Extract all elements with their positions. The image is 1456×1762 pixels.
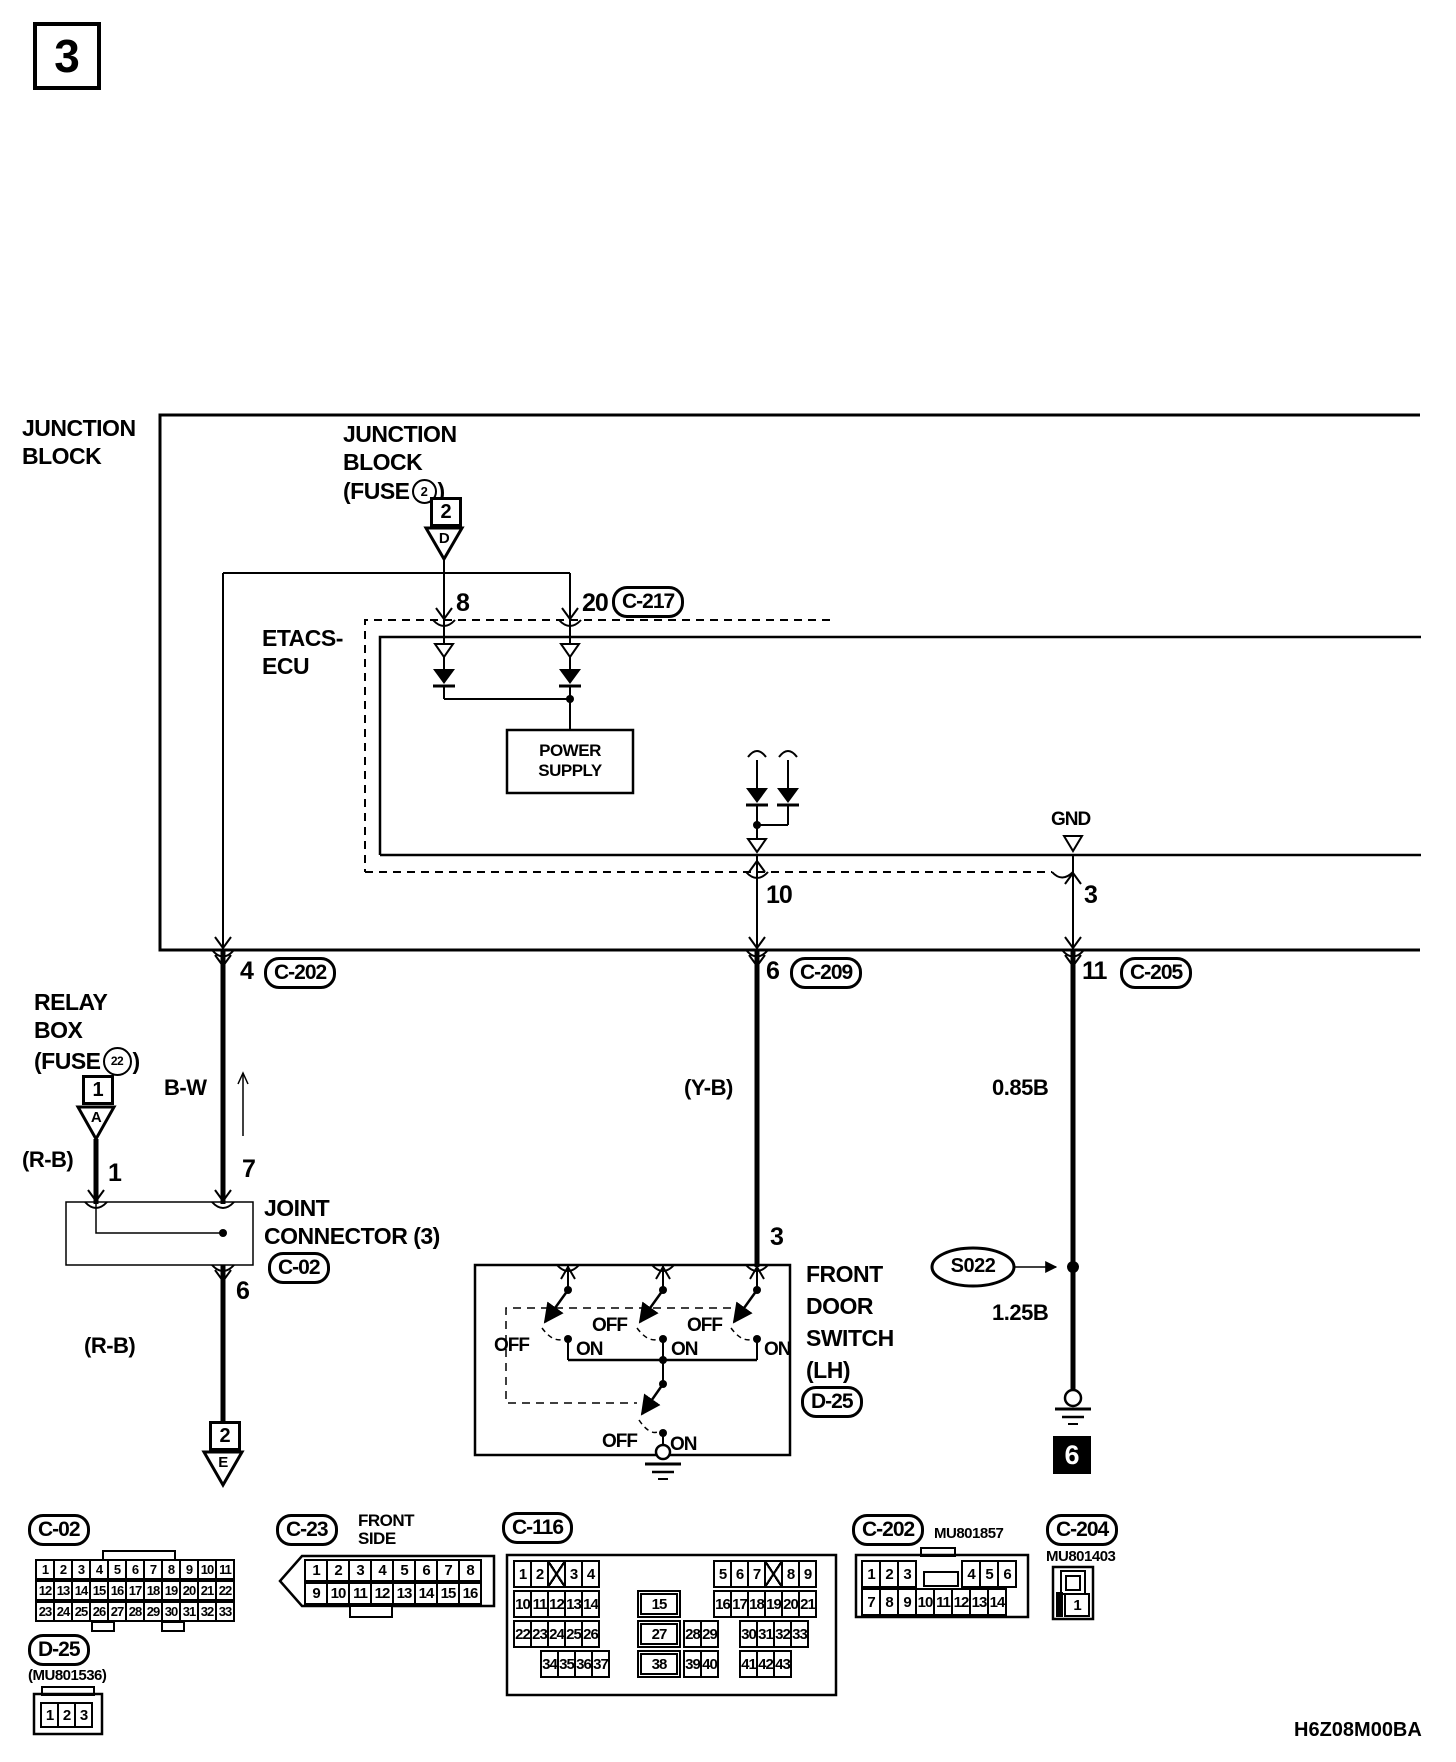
- pinout-badge-c02: C-02: [28, 1514, 90, 1546]
- c23-side-label-2: SIDE: [358, 1530, 396, 1548]
- triangle-letter-e: E: [208, 1455, 238, 1471]
- pin-cell: 9: [897, 1588, 917, 1616]
- pin-cell: 24: [53, 1601, 73, 1622]
- pin-cell: 19: [161, 1580, 181, 1601]
- pin-cell: 3: [74, 1702, 93, 1728]
- pin-cell: 3: [348, 1559, 372, 1582]
- switch1-on-label: ON: [576, 1340, 603, 1360]
- door-switch-label-3: SWITCH: [806, 1326, 894, 1350]
- relay-pin-1: 1: [108, 1160, 121, 1186]
- pin-cell: 12: [370, 1582, 394, 1605]
- triangle-letter-a: A: [81, 1110, 111, 1126]
- pin-cell: 10: [326, 1582, 350, 1605]
- c202-group-r1r: 456: [961, 1560, 1017, 1588]
- c116-group-r3r: 30313233: [739, 1620, 809, 1648]
- connector-badge-c205: C-205: [1120, 957, 1192, 989]
- pin-cell: 31: [179, 1601, 199, 1622]
- pin-cell: 12: [951, 1588, 971, 1616]
- c02-pin-row-2: 1213141516171819202122: [35, 1580, 235, 1601]
- fuse-open: (FUSE: [343, 479, 410, 503]
- relay-box-label-2: BOX: [34, 1018, 82, 1042]
- c02-pin-row-1: 1234567891011: [35, 1559, 235, 1580]
- wire-bw-pin-4: 4: [240, 958, 253, 984]
- pin-cell: 6: [997, 1560, 1017, 1588]
- wiring-diagram-page: 3 JUNCTION BLOCK JUNCTION BLOCK (FUSE 2 …: [0, 0, 1456, 1762]
- pin-cell: 2: [326, 1559, 350, 1582]
- ground-symbol-icon: [1055, 1390, 1091, 1424]
- terminal-slot-2: 2: [209, 1421, 241, 1451]
- switch2-on-label: ON: [671, 1340, 698, 1360]
- schematic-linework: [0, 0, 1456, 1762]
- wire-color-rb-upper: (R-B): [22, 1148, 73, 1171]
- gnd-pin-triangle-icon: [1064, 836, 1082, 851]
- connector-badge-c202: C-202: [264, 957, 336, 989]
- triangle-letter-d: D: [429, 531, 459, 547]
- pin-cell: 3: [71, 1559, 91, 1580]
- pinout-badge-c204: C-204: [1046, 1514, 1118, 1546]
- d25-pin-row: 123: [40, 1702, 93, 1728]
- pin-cell: 8: [161, 1559, 181, 1580]
- pin-cell: 4: [581, 1560, 600, 1588]
- connector-badge-c217: C-217: [612, 586, 684, 618]
- wire-color-rb-lower: (R-B): [84, 1334, 135, 1357]
- pin-cell: 1: [35, 1559, 55, 1580]
- switch3-on-label: ON: [764, 1340, 791, 1360]
- relay-fuse-open: (FUSE: [34, 1049, 101, 1073]
- pin-cell: 14: [71, 1580, 91, 1601]
- pinout-badge-c202: C-202: [852, 1514, 924, 1546]
- c02-pin-row-3: 2324252627282930313233: [35, 1601, 235, 1622]
- power-supply-label-1: POWER: [507, 742, 633, 760]
- c116-group-r2c: 15: [637, 1590, 681, 1618]
- wire-gnd-pin-11: 11: [1082, 958, 1106, 984]
- c116-group-r4l: 34353637: [540, 1650, 610, 1678]
- switch2-off-label: OFF: [592, 1316, 627, 1336]
- pin-cell: 1: [861, 1560, 881, 1588]
- pin-cell: 4: [961, 1560, 981, 1588]
- pin-cell: 16: [458, 1582, 482, 1605]
- pin-cell: 17: [125, 1580, 145, 1601]
- pin-cell: 7: [436, 1559, 460, 1582]
- pin-cell: 7: [861, 1588, 881, 1616]
- pin-cell: 15: [436, 1582, 460, 1605]
- door-switch-label-4: (LH): [806, 1358, 850, 1382]
- pin-cell: 30: [161, 1601, 181, 1622]
- pin-cell: 6: [125, 1559, 145, 1580]
- page-number-box: 3: [33, 22, 101, 90]
- pin-cell: 5: [107, 1559, 127, 1580]
- wire-color-yb: (Y-B): [684, 1076, 733, 1099]
- c202-group-r1l: 123: [861, 1560, 917, 1588]
- pin-cell: 27: [640, 1623, 678, 1645]
- relay-fuse-close: ): [133, 1049, 140, 1073]
- pin-cell: 11: [215, 1559, 235, 1580]
- pin-cell: 2: [879, 1560, 899, 1588]
- door-switch-label-2: DOOR: [806, 1294, 873, 1318]
- switch4-on-label: ON: [670, 1435, 697, 1455]
- junction-block-label-1: JUNCTION: [22, 416, 136, 440]
- switch4-off-label: OFF: [602, 1432, 637, 1452]
- c116-group-r1l: 1234: [513, 1560, 600, 1588]
- pin-cell: 14: [581, 1590, 600, 1618]
- pin-cell: 22: [215, 1580, 235, 1601]
- pin-cell: 14: [987, 1588, 1007, 1616]
- etacs-name-1: ETACS-: [262, 626, 343, 650]
- pin-cell: 28: [125, 1601, 145, 1622]
- switch-pin-3: 3: [770, 1224, 783, 1250]
- etacs-input-diodes: [433, 619, 581, 730]
- c116-group-r3c2: 2829: [683, 1620, 719, 1648]
- wire-color-bw: B-W: [164, 1076, 206, 1099]
- connector-badge-d25: D-25: [801, 1386, 863, 1418]
- pin-cell: 3: [897, 1560, 917, 1588]
- switch3-off-label: OFF: [687, 1316, 722, 1336]
- c23-side-label-1: FRONT: [358, 1512, 414, 1530]
- pinout-badge-d25: D-25: [28, 1634, 90, 1666]
- pin-cell: 4: [89, 1559, 109, 1580]
- etacs-pin-8: 8: [456, 590, 469, 616]
- pin-cell: 26: [89, 1601, 109, 1622]
- pinout-badge-c23: C-23: [276, 1514, 338, 1546]
- pin-cell: 9: [179, 1559, 199, 1580]
- pin-cell: 20: [179, 1580, 199, 1601]
- pin-cell: 15: [89, 1580, 109, 1601]
- pin-cell: 23: [35, 1601, 55, 1622]
- pin-cell: 18: [143, 1580, 163, 1601]
- c116-group-r1r: 56789: [713, 1560, 817, 1588]
- pin-cell: 9: [304, 1582, 328, 1605]
- pin-cell: 13: [969, 1588, 989, 1616]
- pin-cell: 10: [915, 1588, 935, 1616]
- c204-pin-cell: 1: [1064, 1593, 1090, 1617]
- junction-block-label-2: BLOCK: [22, 444, 101, 468]
- pin-cell: 8: [879, 1588, 899, 1616]
- pin-cell: 29: [143, 1601, 163, 1622]
- pin-cell: 38: [640, 1653, 678, 1675]
- pin-cell: 33: [215, 1601, 235, 1622]
- pin-cell: 21: [197, 1580, 217, 1601]
- pinout-badge-c116: C-116: [502, 1512, 573, 1544]
- power-supply-label-2: SUPPLY: [507, 762, 633, 780]
- jb-fuse-label-1: JUNCTION: [343, 422, 457, 446]
- joint-pin-7: 7: [242, 1156, 255, 1182]
- c204-part-number: MU801403: [1046, 1549, 1115, 1565]
- c202-group-r2: 7891011121314: [861, 1588, 1007, 1616]
- c23-pin-row-1: 12345678: [304, 1559, 482, 1582]
- pin-cell: 5: [979, 1560, 999, 1588]
- door-switch-label-1: FRONT: [806, 1262, 883, 1286]
- pin-cell: 9: [798, 1560, 817, 1588]
- c23-pin-row-2: 910111213141516: [304, 1582, 482, 1605]
- c116-group-r2l: 1011121314: [513, 1590, 600, 1618]
- pin-cell: 8: [458, 1559, 482, 1582]
- pin-cell: 1: [1064, 1593, 1090, 1617]
- d25-part-number: (MU801536): [28, 1668, 106, 1684]
- pin-cell: 25: [71, 1601, 91, 1622]
- joint-connector-label-1: JOINT: [264, 1196, 329, 1220]
- pin-cell: 33: [790, 1620, 809, 1648]
- pin-cell: 11: [348, 1582, 372, 1605]
- relay-box-label-1: RELAY: [34, 990, 107, 1014]
- switch1-off-label: OFF: [494, 1336, 529, 1356]
- pin-cell: 40: [700, 1650, 719, 1678]
- gnd-label: GND: [1051, 810, 1090, 830]
- joint-pin-6: 6: [236, 1278, 249, 1304]
- pin-cell: 12: [35, 1580, 55, 1601]
- pin-cell: 1: [304, 1559, 328, 1582]
- wire-size-085b: 0.85B: [992, 1076, 1048, 1099]
- c116-group-r2r: 161718192021: [713, 1590, 817, 1618]
- etacs-pin-20: 20: [582, 590, 608, 616]
- wire-yb-pin-6: 6: [766, 958, 779, 984]
- wire-size-125b: 1.25B: [992, 1301, 1048, 1324]
- c116-group-r4c2: 3940: [683, 1650, 719, 1678]
- pin-cell: 4: [370, 1559, 394, 1582]
- pin-cell: 21: [798, 1590, 817, 1618]
- pin-cell: 15: [640, 1593, 678, 1615]
- pin-cell: 11: [933, 1588, 953, 1616]
- pin-cell: 14: [414, 1582, 438, 1605]
- connector-badge-c02: C-02: [268, 1252, 330, 1284]
- etacs-pin-3: 3: [1084, 882, 1097, 908]
- splice-s022-label: S022: [943, 1256, 1003, 1277]
- pin-cell: 16: [107, 1580, 127, 1601]
- wire-ground-trunk: [1067, 950, 1079, 1390]
- pin-cell: 10: [197, 1559, 217, 1580]
- pin-cell: 43: [773, 1650, 792, 1678]
- joint-connector-box: [66, 1190, 253, 1422]
- joint-connector-label-2: CONNECTOR (3): [264, 1224, 440, 1248]
- diagram-code: H6Z08M00BA: [1294, 1720, 1422, 1741]
- relay-fuse-number-circled: 22: [103, 1047, 132, 1076]
- etacs-pin-10: 10: [766, 882, 792, 908]
- pin-cell: 7: [143, 1559, 163, 1580]
- pin-cell: 13: [53, 1580, 73, 1601]
- c116-group-r4c: 38: [637, 1650, 681, 1678]
- relay-box-label-3: (FUSE 22 ): [34, 1046, 140, 1076]
- pin-cell: 2: [53, 1559, 73, 1580]
- pin-cell: 32: [197, 1601, 217, 1622]
- relay-fuse-slot: 1: [82, 1075, 114, 1105]
- jb-fuse-label-2: BLOCK: [343, 450, 422, 474]
- c116-group-r3c: 27: [637, 1620, 681, 1648]
- pin-cell: 13: [392, 1582, 416, 1605]
- pin-cell: 29: [700, 1620, 719, 1648]
- pin-cell: 26: [581, 1620, 600, 1648]
- pin-cell: 6: [414, 1559, 438, 1582]
- pin-cell: 5: [392, 1559, 416, 1582]
- c116-group-r3l: 2223242526: [513, 1620, 600, 1648]
- ground-point-badge: 6: [1053, 1436, 1091, 1474]
- etacs-output-diodes: [746, 751, 799, 852]
- c202-part-number: MU801857: [934, 1526, 1003, 1542]
- jb-fuse-slot: 2: [430, 497, 462, 527]
- page-number: 3: [54, 29, 80, 83]
- c116-group-r4r: 414243: [739, 1650, 792, 1678]
- pin-cell: 27: [107, 1601, 127, 1622]
- etacs-name-2: ECU: [262, 654, 309, 678]
- pin-cell: 37: [591, 1650, 610, 1678]
- etacs-exit-wires: [746, 855, 1081, 948]
- connector-badge-c209: C-209: [790, 957, 862, 989]
